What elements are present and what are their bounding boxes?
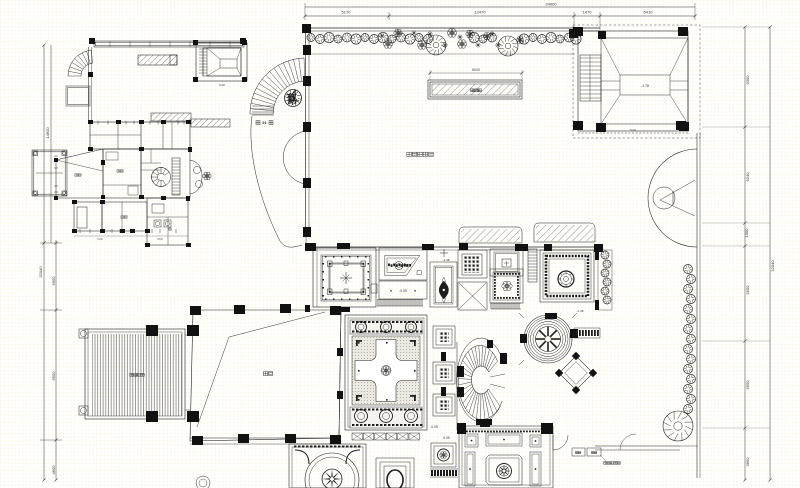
svg-text:6300: 6300 [745,75,750,85]
svg-text:1300: 1300 [744,228,749,238]
svg-text:-1.78: -1.78 [641,84,649,88]
svg-text:14600: 14600 [45,127,50,139]
svg-text:6410: 6410 [644,10,654,15]
svg-text:1470: 1470 [583,10,593,15]
svg-text:6550: 6550 [51,371,56,381]
svg-text:-0.05: -0.05 [442,436,449,440]
svg-text:-1.38: -1.38 [577,309,584,313]
svg-text:5170: 5170 [342,10,352,15]
svg-text:5600: 5600 [745,285,750,295]
svg-text:24000: 24000 [545,2,557,7]
svg-text:-0.05: -0.05 [430,425,437,429]
svg-text:3600: 3600 [157,237,163,241]
svg-text:6240: 6240 [745,172,750,182]
svg-text:5950: 5950 [51,276,56,286]
svg-text:1500: 1500 [97,237,103,241]
svg-text:3690: 3690 [745,457,750,467]
svg-text:5.00: 5.00 [219,83,225,87]
svg-text:5.00: 5.00 [630,128,636,132]
svg-text:12470: 12470 [474,10,486,15]
svg-text:4600: 4600 [51,465,56,475]
svg-text:32040: 32040 [770,260,775,272]
svg-text:-0.05: -0.05 [399,289,407,293]
svg-text:5600: 5600 [745,380,750,390]
svg-text:32040: 32040 [38,266,43,278]
svg-text:6000: 6000 [472,68,480,72]
svg-text:21: 21 [262,120,267,125]
svg-text:-1.38: -1.38 [443,258,450,262]
